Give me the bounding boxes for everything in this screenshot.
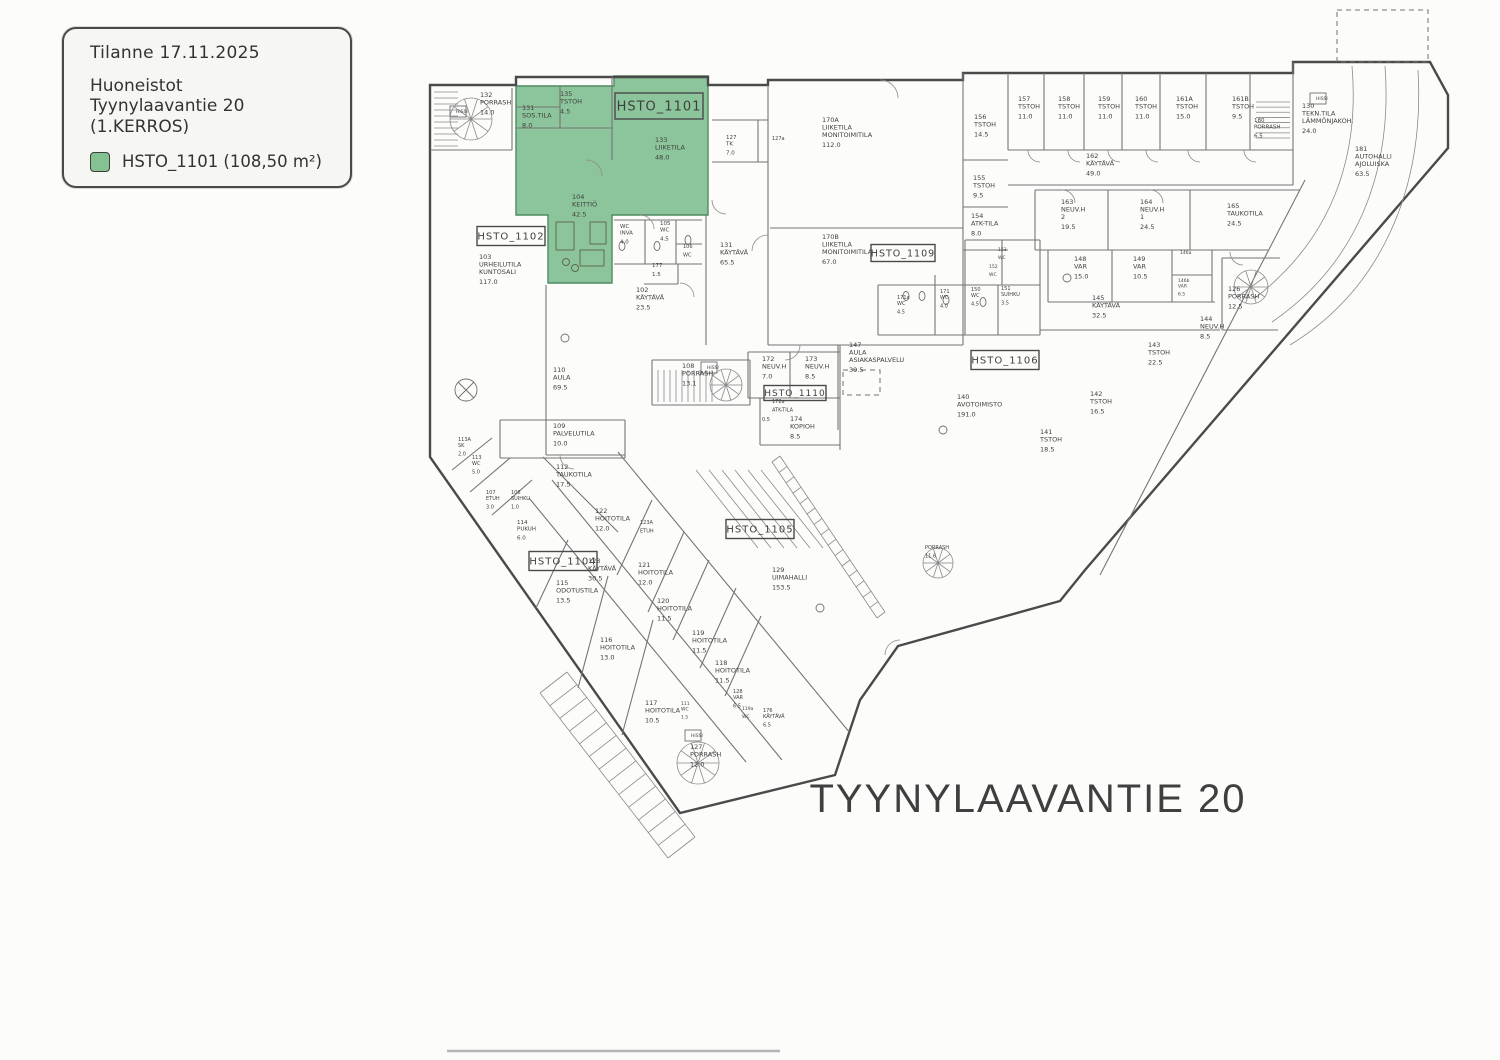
room-label: 180PORRASH6.5 <box>1254 118 1280 140</box>
room-label: 113ASK2.0 <box>458 437 472 458</box>
room-label: 164NEUV.H124.5 <box>1140 198 1164 231</box>
room-label: 173NEUV.H8.5 <box>805 355 829 381</box>
parking-ramp-curves <box>1255 66 1419 345</box>
legend-floor: (1.KERROS) <box>90 117 336 138</box>
room-label: 114PUKUH6.0 <box>517 520 536 542</box>
apartment-box-label: HSTO_1110 <box>764 389 825 399</box>
room-label: 109PALVELUTILA10.0 <box>553 422 595 448</box>
room-label: 158TSTOH11.0 <box>1057 95 1080 121</box>
room-label: 161BTSTOH9.5 <box>1231 95 1254 121</box>
legend-highlight-label: HSTO_1101 (108,50 m²) <box>122 152 322 171</box>
legend-card: Tilanne 17.11.2025 Huoneistot Tyynylaava… <box>62 27 352 188</box>
room-label: 148VAR15.0 <box>1074 255 1088 281</box>
room-label: 102KÄYTÄVÄ23.5 <box>636 286 665 312</box>
room-label: 110AULA69.5 <box>553 366 571 392</box>
street-name-label: TYYNYLAAVANTIE 20 <box>809 777 1246 821</box>
room-label: 155TSTOH9.5 <box>972 174 995 200</box>
room-label: 120HOITOTILA11.5 <box>657 597 693 623</box>
room-label: 141TSTOH18.5 <box>1039 428 1062 454</box>
room-label: 145KÄYTÄVÄ32.5 <box>1092 294 1121 320</box>
room-label: 156TSTOH14.5 <box>973 113 996 139</box>
column-cross <box>455 379 477 401</box>
room-label: 127a <box>772 136 785 142</box>
room-label: 105WC4.5 <box>660 221 671 243</box>
room-label: 152WC <box>989 264 998 278</box>
room-label: WCINVA4.0 <box>620 224 633 246</box>
room-label: 170ALIIKETILAMONITOIMITILA112.0 <box>822 116 873 149</box>
legend-highlight-swatch <box>90 152 110 172</box>
room-label: 112TAUKOTILA17.5 <box>555 463 592 489</box>
room-label: 160TSTOH11.0 <box>1134 95 1157 121</box>
room-label: 113WC5.0 <box>472 455 482 476</box>
room-label: 106SUIHKU1.0 <box>511 490 530 511</box>
room-label: 170BLIIKETILAMONITOIMITILA67.0 <box>822 233 873 266</box>
room-label: HISSI <box>456 109 468 115</box>
room-label: 146bVAR6.5 <box>1178 278 1190 298</box>
legend-highlight-row: HSTO_1101 (108,50 m²) <box>90 152 336 172</box>
apartment-box-label: HSTO_1109 <box>871 248 935 259</box>
room-label: 181AUTOHALLIAJOLUISKA63.5 <box>1355 145 1392 178</box>
room-label: 140AVOTOIMISTO191.0 <box>957 393 1002 419</box>
room-label: 163NEUV.H219.5 <box>1061 198 1085 231</box>
room-label: HISSI <box>691 733 703 739</box>
room-label: 165TAUKOTILA24.5 <box>1226 202 1263 228</box>
room-label: 151SUIHKU3.5 <box>1001 286 1020 307</box>
room-label: 144NEUV.H8.5 <box>1200 315 1224 341</box>
room-label: 121HOITOTILA12.0 <box>638 561 674 587</box>
room-label: 127TK7.0 <box>725 135 737 157</box>
room-label: 157TSTOH11.0 <box>1017 95 1040 121</box>
room-label: 122HOITOTILA12.0 <box>595 507 631 533</box>
legend-subtitle-1: Huoneistot <box>90 76 336 97</box>
apartment-box-label: HSTO_1106 <box>971 356 1038 367</box>
room-label: 117HOITOTILA10.5 <box>645 699 681 725</box>
room-label: 149VAR10.5 <box>1133 255 1147 281</box>
room-label: 161ATSTOH15.0 <box>1175 95 1198 121</box>
room-label: 130TEKN.TILALÄMMÖNJAKOH.24.0 <box>1301 102 1354 135</box>
legend-subtitle-2: Tyynylaavantie 20 <box>90 96 336 117</box>
room-label: 143TSTOH22.5 <box>1147 341 1170 367</box>
room-label: 129UIMAHALLI153.5 <box>772 566 807 592</box>
room-label: 106WC <box>683 244 693 259</box>
apartment-box-label: HSTO_1104 <box>529 557 596 568</box>
room-label: 116HOITOTILA13.0 <box>600 636 636 662</box>
room-label: 1771.5 <box>652 263 663 278</box>
room-label: 119HOITOTILA11.5 <box>692 629 728 655</box>
scanned-floorplan-page: 132PORRASH14.0HISSI135TSTOH4.5131SOS.TIL… <box>0 0 1500 1060</box>
room-label: 176KÄYTÄVÄ6.5 <box>763 708 785 729</box>
room-label: 118HOITOTILA11.5 <box>715 659 751 685</box>
room-label: 107ETUH3.0 <box>486 490 500 511</box>
apartment-box-label: HSTO_1105 <box>726 525 793 536</box>
room-label: 146a <box>1180 250 1192 256</box>
room-label: 171WC4.0 <box>940 289 950 310</box>
exterior-ramp <box>540 672 695 858</box>
wc-fixtures <box>619 236 986 307</box>
room-label: 111WC1.5 <box>681 701 690 721</box>
room-label: 154ATK-TILA8.0 <box>971 212 999 238</box>
room-label: 127PORRASH12.0 <box>690 743 721 769</box>
room-label: HISSI <box>707 365 719 371</box>
room-label: 162KÄYTÄVÄ49.0 <box>1086 152 1115 178</box>
room-label: 174KOPIOH8.5 <box>790 415 815 441</box>
room-label: 159TSTOH11.0 <box>1097 95 1120 121</box>
room-label: 147AULAASIAKASPALVELU39.5 <box>849 341 904 374</box>
room-label: 103URHEILUTILAKUNTOSALI117.0 <box>479 253 522 286</box>
room-label: HISSI <box>1316 96 1328 102</box>
legend-status-date: Tilanne 17.11.2025 <box>90 43 336 64</box>
dashed-outlines <box>843 10 1428 395</box>
room-label: 142TSTOH16.5 <box>1089 390 1112 416</box>
room-label: 172NEUV.H7.0 <box>762 355 786 381</box>
room-label: 0.5 <box>762 417 770 423</box>
room-label: 115ODOTUSTILA13.5 <box>556 579 599 605</box>
room-label: 150WC4.5 <box>971 287 981 308</box>
apartment-box-label: HSTO_1101 <box>617 100 702 115</box>
room-label: 131KÄYTÄVÄ65.5 <box>720 241 749 267</box>
room-label: 132PORRASH14.0 <box>480 91 511 117</box>
room-label: 171aWC4.5 <box>897 295 910 316</box>
room-label: 123AETUH <box>640 520 654 535</box>
room-label: 126PORRASH12.5 <box>1228 285 1259 311</box>
apartment-box-label: HSTO_1102 <box>477 232 544 243</box>
